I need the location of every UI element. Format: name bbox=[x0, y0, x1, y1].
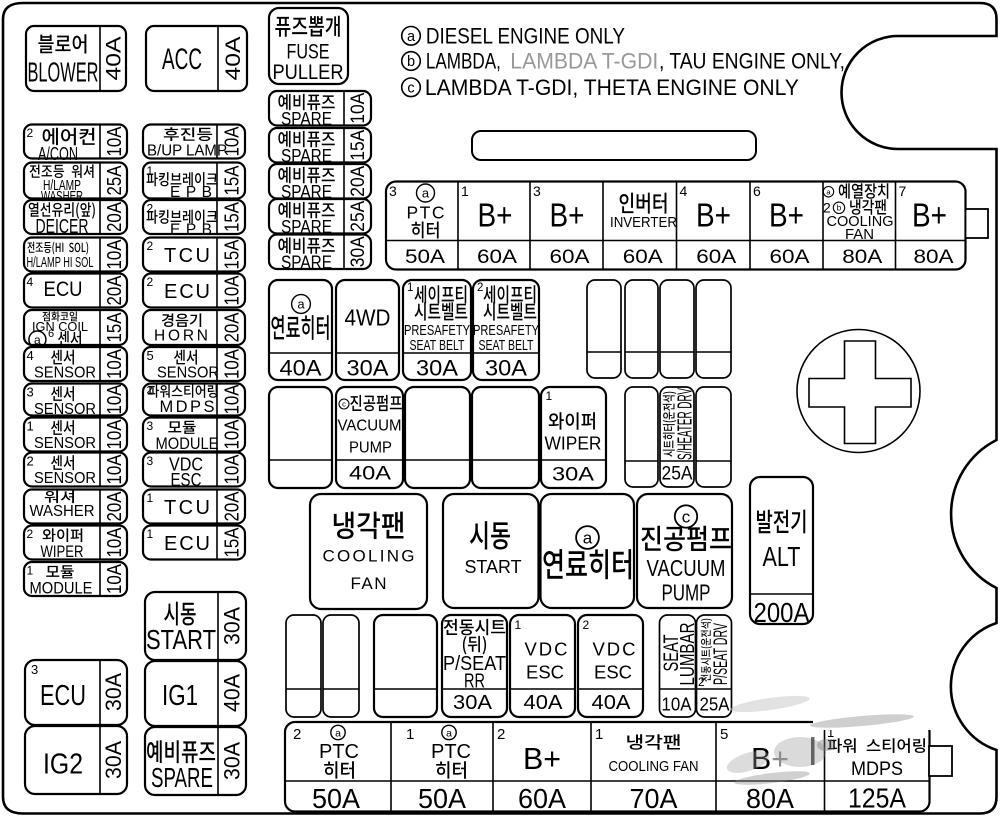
svg-text:DIESEL ENGINE ONLY: DIESEL ENGINE ONLY bbox=[426, 24, 625, 49]
svg-text:4WD: 4WD bbox=[345, 305, 391, 331]
svg-text:1: 1 bbox=[147, 164, 154, 178]
svg-text:20A: 20A bbox=[104, 201, 126, 232]
svg-text:VDC: VDC bbox=[525, 639, 568, 660]
svg-text:FAN: FAN bbox=[351, 574, 387, 593]
svg-text:15A: 15A bbox=[222, 239, 244, 270]
svg-text:VDC: VDC bbox=[593, 639, 636, 660]
svg-text:H/LAMP HI SOL: H/LAMP HI SOL bbox=[27, 254, 94, 271]
svg-text:ECU: ECU bbox=[40, 680, 86, 712]
svg-text:SPARE: SPARE bbox=[281, 109, 332, 129]
svg-text:10A: 10A bbox=[222, 275, 244, 306]
svg-text:IG2: IG2 bbox=[43, 749, 83, 781]
svg-text:a: a bbox=[335, 727, 341, 739]
svg-text:SENSOR: SENSOR bbox=[34, 401, 96, 418]
svg-text:30A: 30A bbox=[220, 742, 245, 780]
svg-text:10A: 10A bbox=[104, 126, 126, 157]
svg-text:ESC: ESC bbox=[171, 470, 202, 490]
svg-text:1: 1 bbox=[546, 389, 553, 403]
svg-text:ECU: ECU bbox=[164, 281, 210, 303]
svg-text:60A: 60A bbox=[477, 247, 517, 268]
svg-text:60A: 60A bbox=[623, 247, 663, 268]
svg-text:START: START bbox=[146, 624, 216, 655]
svg-text:PUMP: PUMP bbox=[662, 580, 711, 606]
svg-text:SPARE: SPARE bbox=[151, 762, 213, 793]
svg-text:80A: 80A bbox=[746, 783, 794, 814]
svg-text:15A: 15A bbox=[348, 129, 369, 160]
svg-text:10A: 10A bbox=[104, 348, 126, 379]
svg-text:LAMBDA T-GDI: LAMBDA T-GDI bbox=[510, 49, 658, 74]
svg-text:2: 2 bbox=[293, 726, 301, 743]
svg-text:1: 1 bbox=[27, 419, 34, 434]
svg-text:DEICER: DEICER bbox=[36, 216, 89, 238]
svg-text:1: 1 bbox=[147, 491, 154, 505]
svg-text:B+: B+ bbox=[478, 197, 513, 234]
svg-text:ACC: ACC bbox=[162, 43, 202, 76]
svg-text:10A: 10A bbox=[222, 454, 244, 485]
svg-text:ESC: ESC bbox=[594, 662, 632, 683]
svg-text:1: 1 bbox=[406, 726, 414, 743]
svg-text:PULLER: PULLER bbox=[273, 61, 344, 84]
svg-text:2: 2 bbox=[27, 454, 34, 469]
svg-text:BLOWER: BLOWER bbox=[28, 56, 99, 87]
svg-text:SENSOR: SENSOR bbox=[34, 365, 96, 382]
svg-text:125A: 125A bbox=[848, 782, 906, 813]
svg-text:WASHER: WASHER bbox=[30, 503, 95, 520]
svg-text:2: 2 bbox=[147, 275, 154, 289]
svg-text:ECU: ECU bbox=[44, 278, 83, 301]
svg-text:60A: 60A bbox=[696, 247, 736, 268]
svg-text:30A: 30A bbox=[552, 465, 594, 486]
svg-text:80A: 80A bbox=[842, 247, 882, 268]
svg-text:FAN: FAN bbox=[845, 226, 874, 243]
svg-text:30A: 30A bbox=[485, 356, 527, 381]
svg-text:10A: 10A bbox=[104, 527, 126, 558]
svg-text:20A: 20A bbox=[104, 275, 126, 306]
svg-text:25A: 25A bbox=[700, 694, 731, 715]
svg-text:60A: 60A bbox=[770, 247, 810, 268]
svg-text:10A: 10A bbox=[348, 92, 369, 123]
svg-text:WIPER: WIPER bbox=[545, 433, 602, 453]
svg-text:1: 1 bbox=[461, 183, 469, 199]
svg-text:10A: 10A bbox=[222, 348, 244, 379]
svg-text:A/CON: A/CON bbox=[38, 144, 78, 164]
svg-text:30A: 30A bbox=[101, 741, 126, 779]
svg-text:2: 2 bbox=[497, 726, 505, 743]
svg-text:30A: 30A bbox=[348, 236, 369, 267]
svg-text:70A: 70A bbox=[630, 783, 678, 814]
svg-text:B/UP LAMP: B/UP LAMP bbox=[147, 142, 227, 159]
svg-text:15A: 15A bbox=[104, 312, 126, 343]
svg-text:60A: 60A bbox=[518, 783, 566, 814]
svg-text:5: 5 bbox=[720, 726, 728, 743]
svg-text:10A: 10A bbox=[222, 384, 244, 415]
svg-text:RR: RR bbox=[464, 671, 485, 693]
svg-text:a: a bbox=[34, 333, 41, 347]
svg-text:25A: 25A bbox=[348, 200, 369, 231]
svg-text:VACUUM: VACUUM bbox=[338, 417, 402, 434]
svg-text:LAMBDA T-GDI, THETA ENGINE ONL: LAMBDA T-GDI, THETA ENGINE ONLY bbox=[425, 75, 799, 100]
svg-text:B+: B+ bbox=[550, 197, 585, 234]
svg-text:B+: B+ bbox=[912, 197, 947, 234]
svg-text:7: 7 bbox=[899, 183, 907, 199]
svg-text:6: 6 bbox=[753, 183, 761, 199]
svg-text:TCU: TCU bbox=[164, 497, 210, 519]
svg-text:PUMP: PUMP bbox=[349, 439, 392, 456]
svg-text:SEAT BELT: SEAT BELT bbox=[479, 337, 534, 354]
svg-text:c: c bbox=[342, 400, 346, 409]
svg-text:40A: 40A bbox=[220, 674, 245, 712]
svg-text:40A: 40A bbox=[524, 692, 564, 714]
svg-text:3: 3 bbox=[389, 183, 397, 199]
svg-text:30A: 30A bbox=[101, 673, 126, 711]
svg-text:30A: 30A bbox=[347, 356, 389, 381]
svg-text:3: 3 bbox=[533, 183, 541, 199]
svg-text:200A: 200A bbox=[754, 597, 810, 628]
svg-text:MDPS: MDPS bbox=[851, 759, 903, 780]
svg-text:B+: B+ bbox=[523, 741, 561, 776]
svg-text:a: a bbox=[297, 297, 305, 312]
svg-text:B+: B+ bbox=[769, 197, 804, 234]
svg-text:PTC: PTC bbox=[431, 741, 471, 763]
svg-text:10A: 10A bbox=[222, 126, 244, 157]
svg-text:SENSOR: SENSOR bbox=[157, 365, 219, 382]
svg-text:MODULE: MODULE bbox=[156, 435, 219, 453]
svg-text:PTC: PTC bbox=[407, 203, 445, 223]
svg-text:INVERTER: INVERTER bbox=[610, 215, 677, 231]
svg-text:3: 3 bbox=[147, 454, 154, 468]
svg-text:2: 2 bbox=[147, 202, 154, 216]
svg-text:a: a bbox=[446, 727, 452, 739]
svg-text:50A: 50A bbox=[418, 783, 466, 814]
svg-text:2: 2 bbox=[477, 282, 483, 294]
svg-text:1: 1 bbox=[147, 527, 154, 541]
svg-text:LAMBDA,: LAMBDA, bbox=[426, 49, 501, 74]
svg-text:25A: 25A bbox=[662, 464, 693, 485]
svg-text:SEAT BELT: SEAT BELT bbox=[410, 337, 465, 354]
svg-text:40A: 40A bbox=[280, 356, 322, 381]
svg-text:50A: 50A bbox=[405, 247, 445, 268]
svg-text:10A: 10A bbox=[104, 563, 126, 594]
svg-text:COOLING: COOLING bbox=[323, 547, 415, 566]
svg-text:10A: 10A bbox=[104, 454, 126, 485]
svg-text:30A: 30A bbox=[220, 607, 245, 645]
svg-text:P/SEAT DRV: P/SEAT DRV bbox=[711, 623, 732, 685]
svg-text:SPARE: SPARE bbox=[281, 252, 332, 272]
svg-text:10A: 10A bbox=[104, 384, 126, 415]
svg-text:10A: 10A bbox=[662, 694, 693, 715]
svg-text:4: 4 bbox=[27, 348, 34, 363]
svg-text:2: 2 bbox=[147, 239, 154, 253]
svg-text:50A: 50A bbox=[312, 783, 360, 814]
svg-text:10A: 10A bbox=[104, 239, 126, 270]
svg-text:b: b bbox=[837, 204, 842, 213]
svg-text:2: 2 bbox=[583, 618, 590, 632]
svg-text:10A: 10A bbox=[104, 419, 126, 450]
svg-text:MDPS: MDPS bbox=[160, 398, 215, 416]
svg-text:ESC: ESC bbox=[526, 662, 564, 683]
svg-text:ALT: ALT bbox=[763, 541, 801, 572]
svg-text:2: 2 bbox=[27, 527, 34, 541]
svg-text:20A: 20A bbox=[104, 491, 126, 522]
svg-text:40A: 40A bbox=[222, 37, 245, 81]
svg-text:40A: 40A bbox=[349, 464, 391, 485]
svg-text:4: 4 bbox=[27, 275, 34, 289]
svg-text:S/HEATER DRV: S/HEATER DRV bbox=[675, 388, 697, 460]
svg-text:10A: 10A bbox=[222, 419, 244, 450]
svg-text:3: 3 bbox=[147, 419, 154, 433]
svg-text:TCU: TCU bbox=[164, 245, 210, 267]
svg-text:20A: 20A bbox=[348, 165, 369, 196]
svg-text:3: 3 bbox=[27, 385, 34, 400]
svg-text:, TAU ENGINE ONLY,: , TAU ENGINE ONLY, bbox=[659, 49, 845, 74]
svg-text:1: 1 bbox=[595, 726, 603, 743]
svg-text:80A: 80A bbox=[914, 247, 954, 268]
svg-text:c: c bbox=[682, 508, 691, 527]
svg-text:EPB: EPB bbox=[170, 221, 212, 238]
svg-text:a: a bbox=[583, 529, 593, 548]
svg-text:SENSOR: SENSOR bbox=[34, 470, 96, 487]
svg-text:6: 6 bbox=[48, 328, 54, 340]
svg-text:PTC: PTC bbox=[319, 741, 359, 763]
svg-text:c: c bbox=[407, 81, 414, 97]
svg-text:1: 1 bbox=[407, 282, 413, 294]
svg-text:30A: 30A bbox=[453, 692, 493, 714]
svg-text:60A: 60A bbox=[550, 247, 590, 268]
svg-text:MODULE: MODULE bbox=[30, 579, 93, 597]
svg-text:15A: 15A bbox=[222, 165, 244, 196]
svg-text:SPARE: SPARE bbox=[281, 146, 332, 166]
svg-text:1: 1 bbox=[27, 564, 34, 578]
svg-text:START: START bbox=[465, 557, 522, 577]
svg-text:EPB: EPB bbox=[170, 184, 212, 201]
svg-text:40A: 40A bbox=[592, 692, 632, 714]
svg-text:15A: 15A bbox=[222, 201, 244, 232]
svg-text:COOLING FAN: COOLING FAN bbox=[609, 758, 699, 775]
svg-text:ECU: ECU bbox=[164, 533, 210, 555]
svg-text:B+: B+ bbox=[696, 197, 731, 234]
svg-text:15A: 15A bbox=[222, 527, 244, 558]
svg-text:3: 3 bbox=[31, 662, 38, 677]
svg-text:IG1: IG1 bbox=[162, 680, 198, 712]
svg-text:2: 2 bbox=[27, 126, 34, 140]
svg-text:1: 1 bbox=[515, 618, 522, 632]
svg-text:5: 5 bbox=[147, 348, 154, 363]
svg-text:30A: 30A bbox=[416, 356, 458, 381]
svg-text:4: 4 bbox=[680, 183, 688, 199]
svg-text:40A: 40A bbox=[102, 37, 125, 81]
svg-text:SENSOR: SENSOR bbox=[34, 435, 96, 452]
svg-text:b: b bbox=[407, 54, 415, 70]
svg-text:20A: 20A bbox=[222, 491, 244, 522]
svg-text:a: a bbox=[407, 29, 416, 45]
svg-text:WIPER: WIPER bbox=[41, 543, 84, 561]
svg-text:VACUUM: VACUUM bbox=[647, 555, 726, 581]
svg-text:20A: 20A bbox=[222, 312, 244, 343]
svg-text:a: a bbox=[422, 186, 430, 201]
svg-text:25A: 25A bbox=[104, 165, 126, 196]
